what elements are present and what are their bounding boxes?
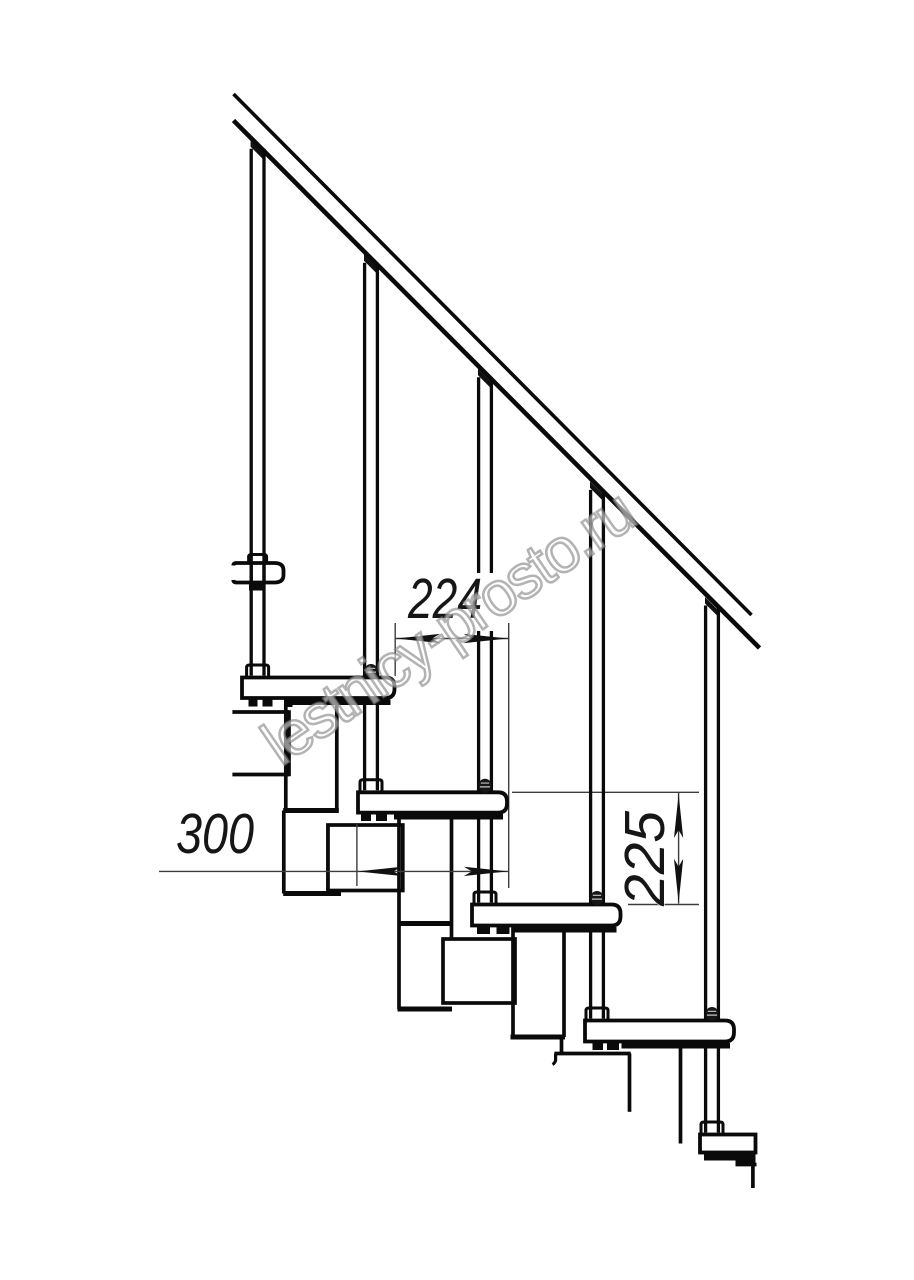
svg-text:300: 300 — [176, 802, 254, 866]
svg-text:225: 225 — [613, 811, 677, 907]
